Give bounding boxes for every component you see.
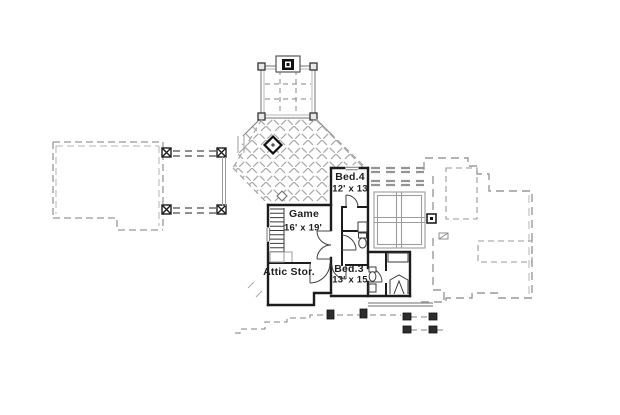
game-dims: 16' x 19' <box>284 223 322 233</box>
bed4-dims: 12' x 13 <box>332 184 368 194</box>
porch-posts <box>327 309 437 333</box>
deck-grid-dashed <box>265 70 311 114</box>
bed3-name: Bed.3 <box>334 264 364 275</box>
garage-roof-outline <box>53 142 163 230</box>
skylight-grid <box>374 192 425 248</box>
porch-roof-lines <box>232 282 444 333</box>
room-label-bed4: Bed.4 <box>335 172 365 183</box>
room-label-game: Game <box>289 209 319 220</box>
roof-vent-glyph <box>439 233 448 239</box>
breezeway-columns <box>162 148 226 214</box>
room-label-bed3: Bed.3 <box>334 264 364 275</box>
bed3-dims: 13' x 15 <box>332 275 368 285</box>
chimney <box>276 56 300 72</box>
right-wing-column <box>427 214 448 239</box>
right-wing-roof-outline <box>371 168 424 185</box>
right-wing-roof-edges <box>421 158 532 302</box>
game-name: Game <box>289 209 319 220</box>
bed4-name: Bed.4 <box>335 172 365 183</box>
breezeway-roof-lines <box>173 151 217 213</box>
room-dims-bed3: 13' x 15 <box>332 275 368 285</box>
room-dims-bed4: 12' x 13 <box>332 184 368 194</box>
open-to-below-lattice <box>225 110 375 210</box>
room-dims-game: 16' x 19' <box>284 223 322 233</box>
room-label-attic: Attic Stor. <box>263 267 315 278</box>
attic-name: Attic Stor. <box>263 267 315 278</box>
floor-plan-canvas: Bed.4 12' x 13 Game 16' x 19' Attic Stor… <box>0 0 620 415</box>
